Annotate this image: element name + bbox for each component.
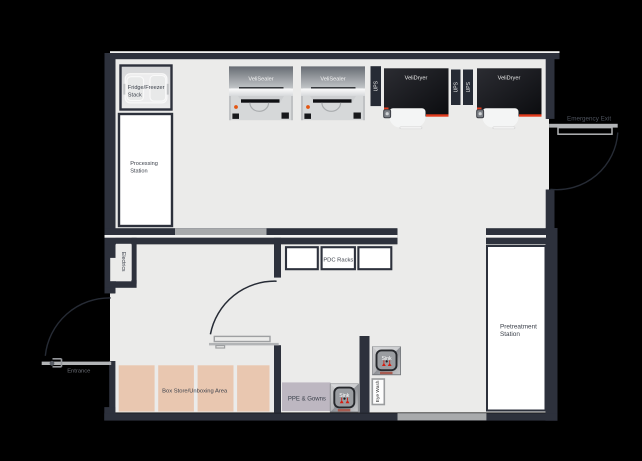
svg-text:Emergency Exit: Emergency Exit	[567, 115, 611, 122]
svg-text:Pretreatment: Pretreatment	[500, 323, 537, 330]
svg-text:Processing: Processing	[130, 161, 158, 167]
svg-text:PDC Racks: PDC Racks	[323, 257, 353, 263]
svg-text:Eye Wash: Eye Wash	[375, 380, 381, 402]
svg-text:PPE & Gowns: PPE & Gowns	[288, 397, 326, 403]
svg-text:UPS: UPS	[466, 81, 472, 92]
svg-text:UPS: UPS	[454, 81, 460, 92]
svg-text:Electrics: Electrics	[120, 252, 126, 272]
svg-text:Station: Station	[130, 168, 147, 174]
svg-text:UPS: UPS	[374, 80, 380, 91]
svg-text:Entrance: Entrance	[67, 369, 90, 375]
svg-text:Box Store/Unboxing Area: Box Store/Unboxing Area	[162, 388, 228, 394]
svg-text:Station: Station	[500, 331, 520, 338]
svg-text:Fridge/Freezer: Fridge/Freezer	[128, 85, 165, 91]
svg-text:Stack: Stack	[128, 92, 142, 98]
